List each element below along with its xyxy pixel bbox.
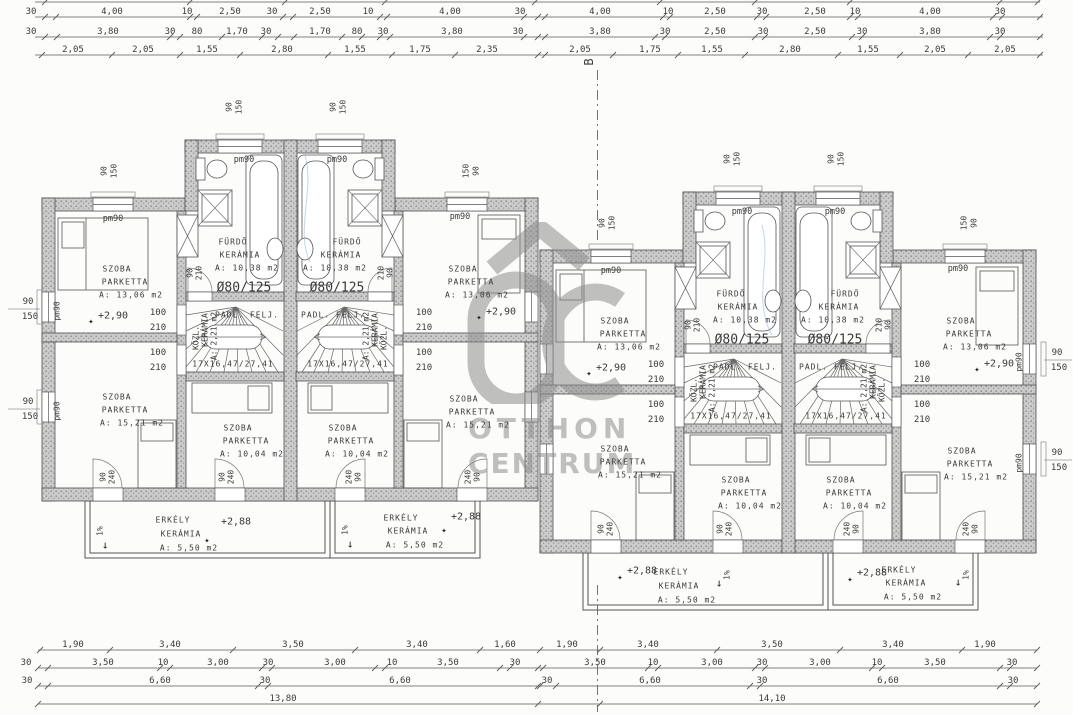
floorplan-sheet: OTTHON CENTRUM SZOBAPARKETTAA: 13,06 m2+… xyxy=(0,0,1073,715)
floorplan-linework xyxy=(0,0,1073,715)
